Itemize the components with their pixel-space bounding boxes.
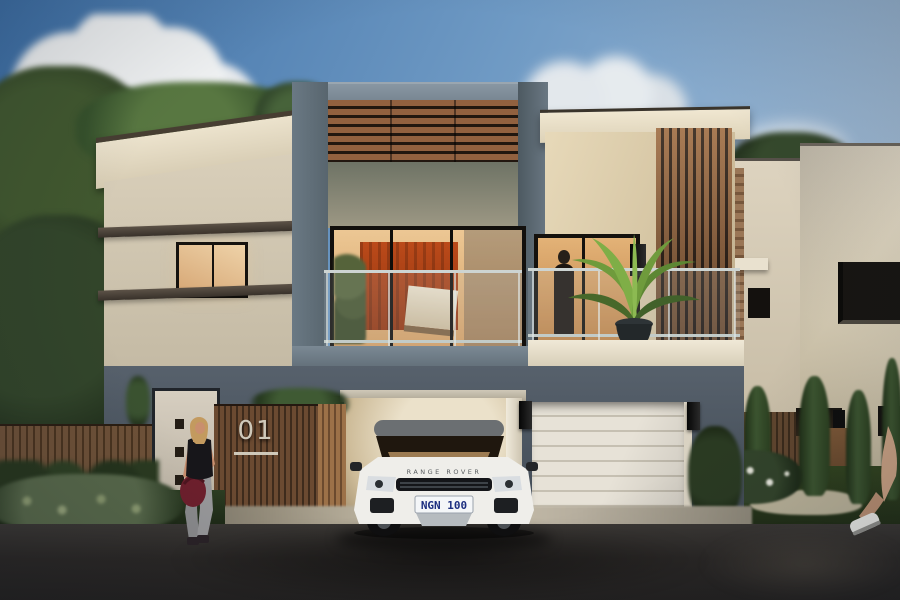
car-headlight-lens: [375, 480, 383, 488]
balustrade-post: [532, 271, 534, 345]
balustrade-post: [454, 273, 456, 351]
exterior-render-scene: 01 RANGE ROVER NGN 100: [0, 0, 900, 600]
balcony-floor-slab: [528, 340, 744, 369]
balustrade-post: [734, 271, 736, 345]
center-recessed-wall: [328, 162, 518, 228]
woman-walking: [166, 414, 230, 548]
cypress-tree: [799, 376, 830, 496]
car-brand-text: RANGE ROVER: [407, 468, 482, 476]
woman-shoe: [197, 535, 209, 543]
car-mirror: [350, 462, 362, 471]
car-grille-slat: [400, 482, 488, 484]
balustrade-rail: [324, 340, 522, 343]
balustrade-post: [518, 273, 520, 351]
center-glass-balustrade: [324, 270, 522, 351]
jogger-partial: [846, 418, 900, 550]
center-box-left-column: [292, 82, 328, 368]
car-roof: [374, 420, 504, 438]
car-license-plate-text: NGN 100: [421, 499, 467, 512]
car-foglight: [494, 498, 518, 513]
house-number-sign: 01: [234, 416, 278, 455]
neighbour-small-window: [748, 288, 770, 318]
balcony-palm-plant: [558, 226, 710, 352]
car-skid-plate: [416, 513, 472, 526]
balustrade-post: [326, 273, 328, 351]
car-grille-slat: [400, 486, 488, 488]
car-mirror: [526, 462, 538, 471]
neighbour-wall-sconce-light: [833, 410, 845, 428]
woman-face: [195, 422, 205, 434]
range-rover-car: RANGE ROVER NGN 100: [346, 412, 542, 540]
balustrade-post: [388, 273, 390, 351]
neighbour-box-window: [838, 262, 900, 324]
garage-wall-sconce-light: [687, 402, 700, 430]
car-grille: [396, 478, 492, 491]
car-headlight-lens: [505, 480, 513, 488]
jogger-thigh: [881, 426, 897, 502]
timber-louver-band: [328, 100, 518, 162]
car-foglight: [370, 498, 394, 513]
hedge-by-door: [126, 376, 150, 428]
